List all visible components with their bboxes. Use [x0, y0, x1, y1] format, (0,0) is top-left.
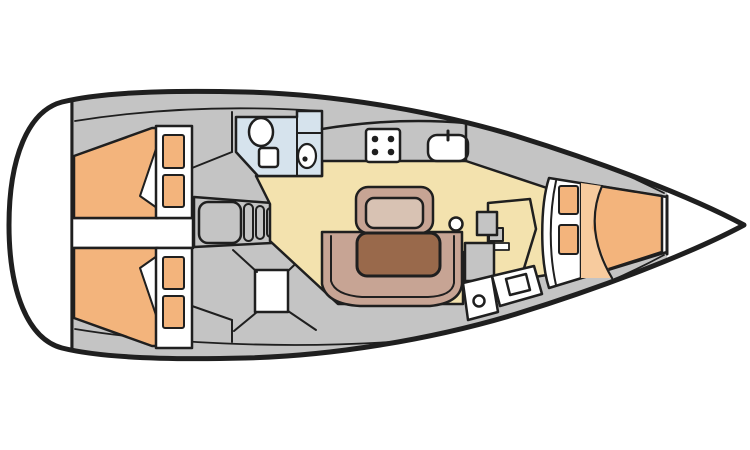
basin-drain	[302, 156, 307, 161]
locker-box	[255, 270, 288, 312]
burner-4	[388, 149, 395, 156]
head-sink	[259, 148, 278, 167]
salon-table	[357, 233, 440, 276]
boat-floorplan	[0, 0, 750, 450]
fwd-sink	[506, 274, 530, 295]
pillow-port-2	[163, 175, 184, 207]
fwd-toilet	[474, 296, 485, 307]
engine-room-band	[72, 218, 193, 248]
stove	[366, 129, 400, 162]
cabinet-small	[477, 212, 497, 235]
companionway-step-3	[256, 206, 264, 239]
anchor-locker	[667, 130, 750, 320]
burner-1	[372, 136, 379, 143]
companionway-step-1	[199, 202, 241, 243]
burner-2	[388, 136, 395, 143]
salon-bench-seat	[366, 198, 423, 228]
companionway-step-2	[244, 204, 253, 241]
mast-post	[450, 218, 463, 231]
wash-basin	[298, 144, 316, 168]
toilet	[249, 118, 273, 146]
pillow-stbd-1	[163, 257, 184, 289]
pillow-stbd-2	[163, 296, 184, 328]
floorplan-svg	[0, 0, 750, 450]
pillow-port-1	[163, 135, 184, 168]
vberth-pillow-2	[559, 225, 578, 254]
vberth-pillow-1	[559, 186, 578, 214]
burner-3	[372, 149, 379, 156]
